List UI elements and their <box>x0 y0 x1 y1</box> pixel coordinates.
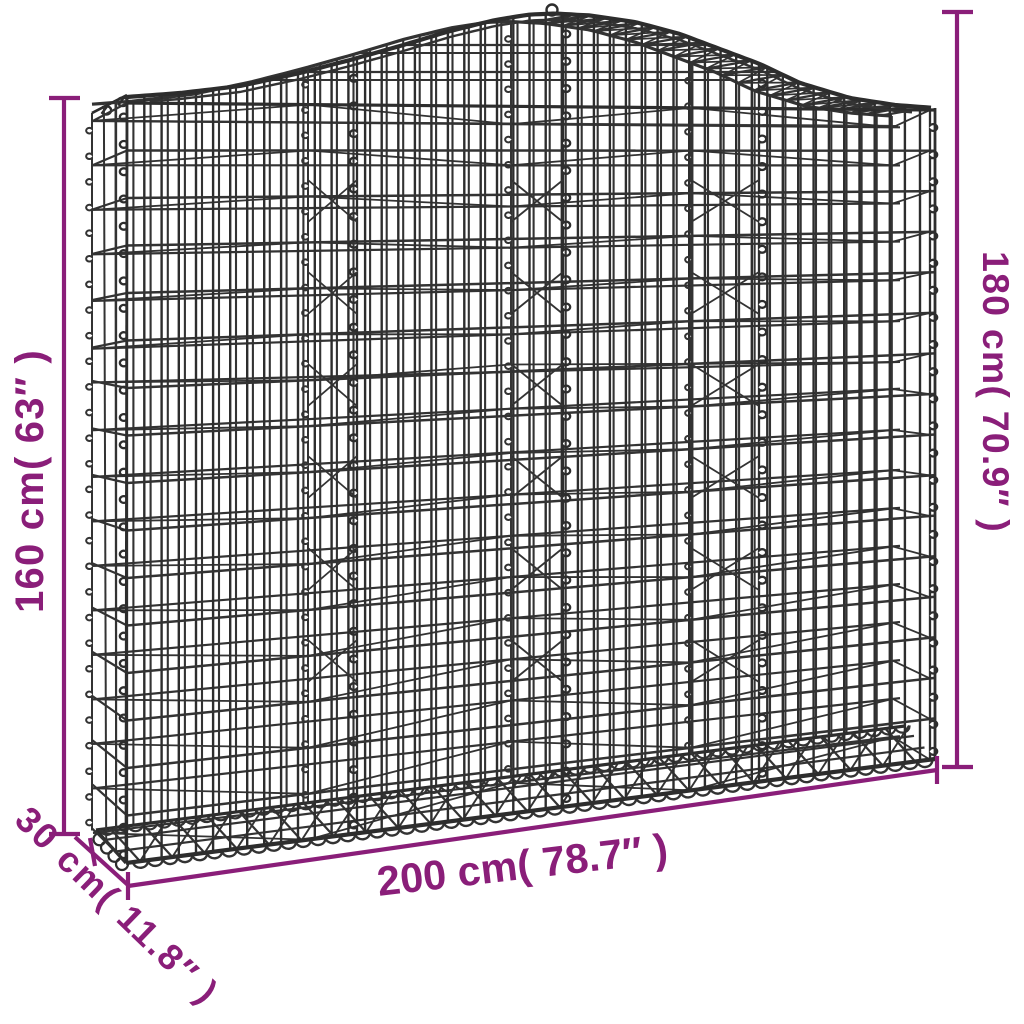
svg-text:160 cm( 63″ ): 160 cm( 63″ ) <box>8 349 52 613</box>
svg-text:180 cm( 70.9″ ): 180 cm( 70.9″ ) <box>975 251 1017 533</box>
svg-text:200 cm( 78.7″ ): 200 cm( 78.7″ ) <box>375 824 671 905</box>
